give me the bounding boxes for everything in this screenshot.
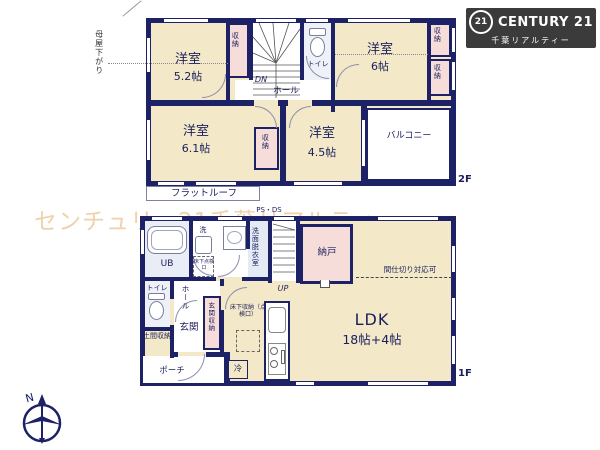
floor-1-tag: 1F [458, 368, 482, 380]
wall [140, 327, 174, 331]
logo-number: 21 [475, 17, 488, 27]
hall-label-1f: ホール [181, 285, 190, 311]
window [140, 230, 145, 254]
logo-text: CENTURY 21 [498, 15, 593, 30]
wall [427, 18, 431, 102]
storeroom-label: 納戸 [306, 247, 348, 258]
fridge-label: 冷 [230, 364, 246, 374]
stove-burner [270, 360, 278, 368]
window [296, 381, 314, 386]
wall [220, 279, 224, 286]
wall [280, 106, 286, 186]
window [196, 181, 236, 186]
room-size: 4.5帖 [294, 146, 350, 159]
laundry-label: 洗 [194, 226, 212, 234]
wall [268, 221, 272, 283]
wall [242, 277, 272, 281]
stairs-down-label: DN [252, 75, 270, 85]
window [451, 28, 456, 52]
room-size: 6.1帖 [168, 142, 224, 155]
sliding-window [361, 120, 366, 166]
kitchen-sink [268, 307, 286, 333]
stairs-1f [273, 222, 295, 280]
underfloor-storage-label: 床下収納（点検口） [230, 304, 266, 318]
partition-note: 間仕切り対応可 [378, 265, 442, 274]
window [146, 120, 151, 160]
eaves-note: 母屋下がり [94, 30, 104, 75]
window [368, 381, 428, 386]
wall [220, 310, 224, 357]
partition-dashed-line [356, 277, 452, 278]
window [294, 181, 342, 186]
compass-north-label: N [24, 391, 35, 406]
room-label: 洋室 [168, 124, 224, 140]
balcony-2f [366, 108, 451, 181]
room-label: 洋室 [352, 42, 408, 58]
window [146, 38, 151, 72]
window [451, 298, 456, 320]
wall [312, 100, 456, 106]
toilet-fixture-2f [309, 28, 326, 36]
wall [296, 221, 300, 283]
bathtub-inner [151, 230, 183, 250]
closet-label: 収納 [433, 27, 441, 43]
window [348, 18, 410, 23]
window [218, 216, 242, 221]
brand-logo: 21 CENTURY 21 千葉リアルティー [466, 8, 596, 48]
window [451, 336, 456, 364]
floor-2-tag: 2F [458, 174, 482, 186]
window [158, 181, 184, 186]
room-size: 6帖 [352, 60, 408, 73]
corner-tick [122, 0, 141, 16]
closet-label: 収納 [231, 32, 239, 48]
logo-subtitle: 千葉リアルティー [491, 35, 570, 46]
window [152, 216, 182, 221]
vanity-basin [227, 231, 242, 244]
ldk-label: LDK [340, 310, 404, 329]
ldk-size: 18帖+4帖 [334, 332, 410, 347]
stove-grill [281, 350, 285, 364]
toilet-fixture-1f [149, 301, 164, 320]
stove-burner [270, 347, 278, 355]
window [451, 246, 456, 272]
porch-label: ポーチ [152, 366, 192, 376]
toilet-label-2f: トイレ [303, 60, 333, 68]
wall [226, 18, 230, 103]
wall [146, 100, 254, 106]
closet-label: 収納 [261, 134, 269, 150]
stairs-up-label: UP [272, 284, 294, 294]
hall-label-2f: ホール [256, 86, 316, 96]
wall [170, 352, 178, 357]
entrance-storage-label: 玄関収納 [206, 302, 214, 332]
compass-icon: N [12, 390, 70, 448]
wall [140, 277, 216, 281]
window [164, 18, 208, 23]
washroom-label: 洗面脱衣室 [251, 227, 259, 267]
closet-label: 収納 [433, 64, 441, 80]
wall [246, 221, 250, 249]
window [451, 62, 456, 90]
window [306, 18, 328, 23]
room-name: 洋室 [175, 52, 201, 67]
pipe-space-label: PS・DS [248, 206, 290, 214]
ub-label: UB [152, 259, 182, 270]
doma-storage-label: 土間収納 [142, 332, 172, 340]
underfloor-hatch-label: 床下点検口 [194, 259, 214, 271]
underfloor-storage-box [236, 330, 260, 352]
room-label: 洋室 [294, 126, 350, 142]
storeroom-door-mark [320, 280, 330, 288]
wall [300, 18, 304, 80]
century21-seal-icon: 21 [469, 10, 493, 34]
flat-roof-label: フラットルーフ [156, 188, 252, 199]
floor-plan-canvas: センチュリー21千葉リアルティー [0, 0, 600, 450]
toilet-fixture-2f [310, 37, 325, 57]
toilet-fixture-1f [148, 293, 165, 300]
window [378, 216, 438, 221]
room-label: 洋室 [160, 52, 216, 68]
washing-machine [195, 236, 212, 254]
room-size: 5.2帖 [160, 70, 216, 83]
window [274, 216, 294, 221]
balcony-label: バルコニー [376, 131, 442, 142]
entrance-label: 玄関 [174, 322, 204, 333]
toilet-label-1f: トイレ [143, 284, 171, 292]
